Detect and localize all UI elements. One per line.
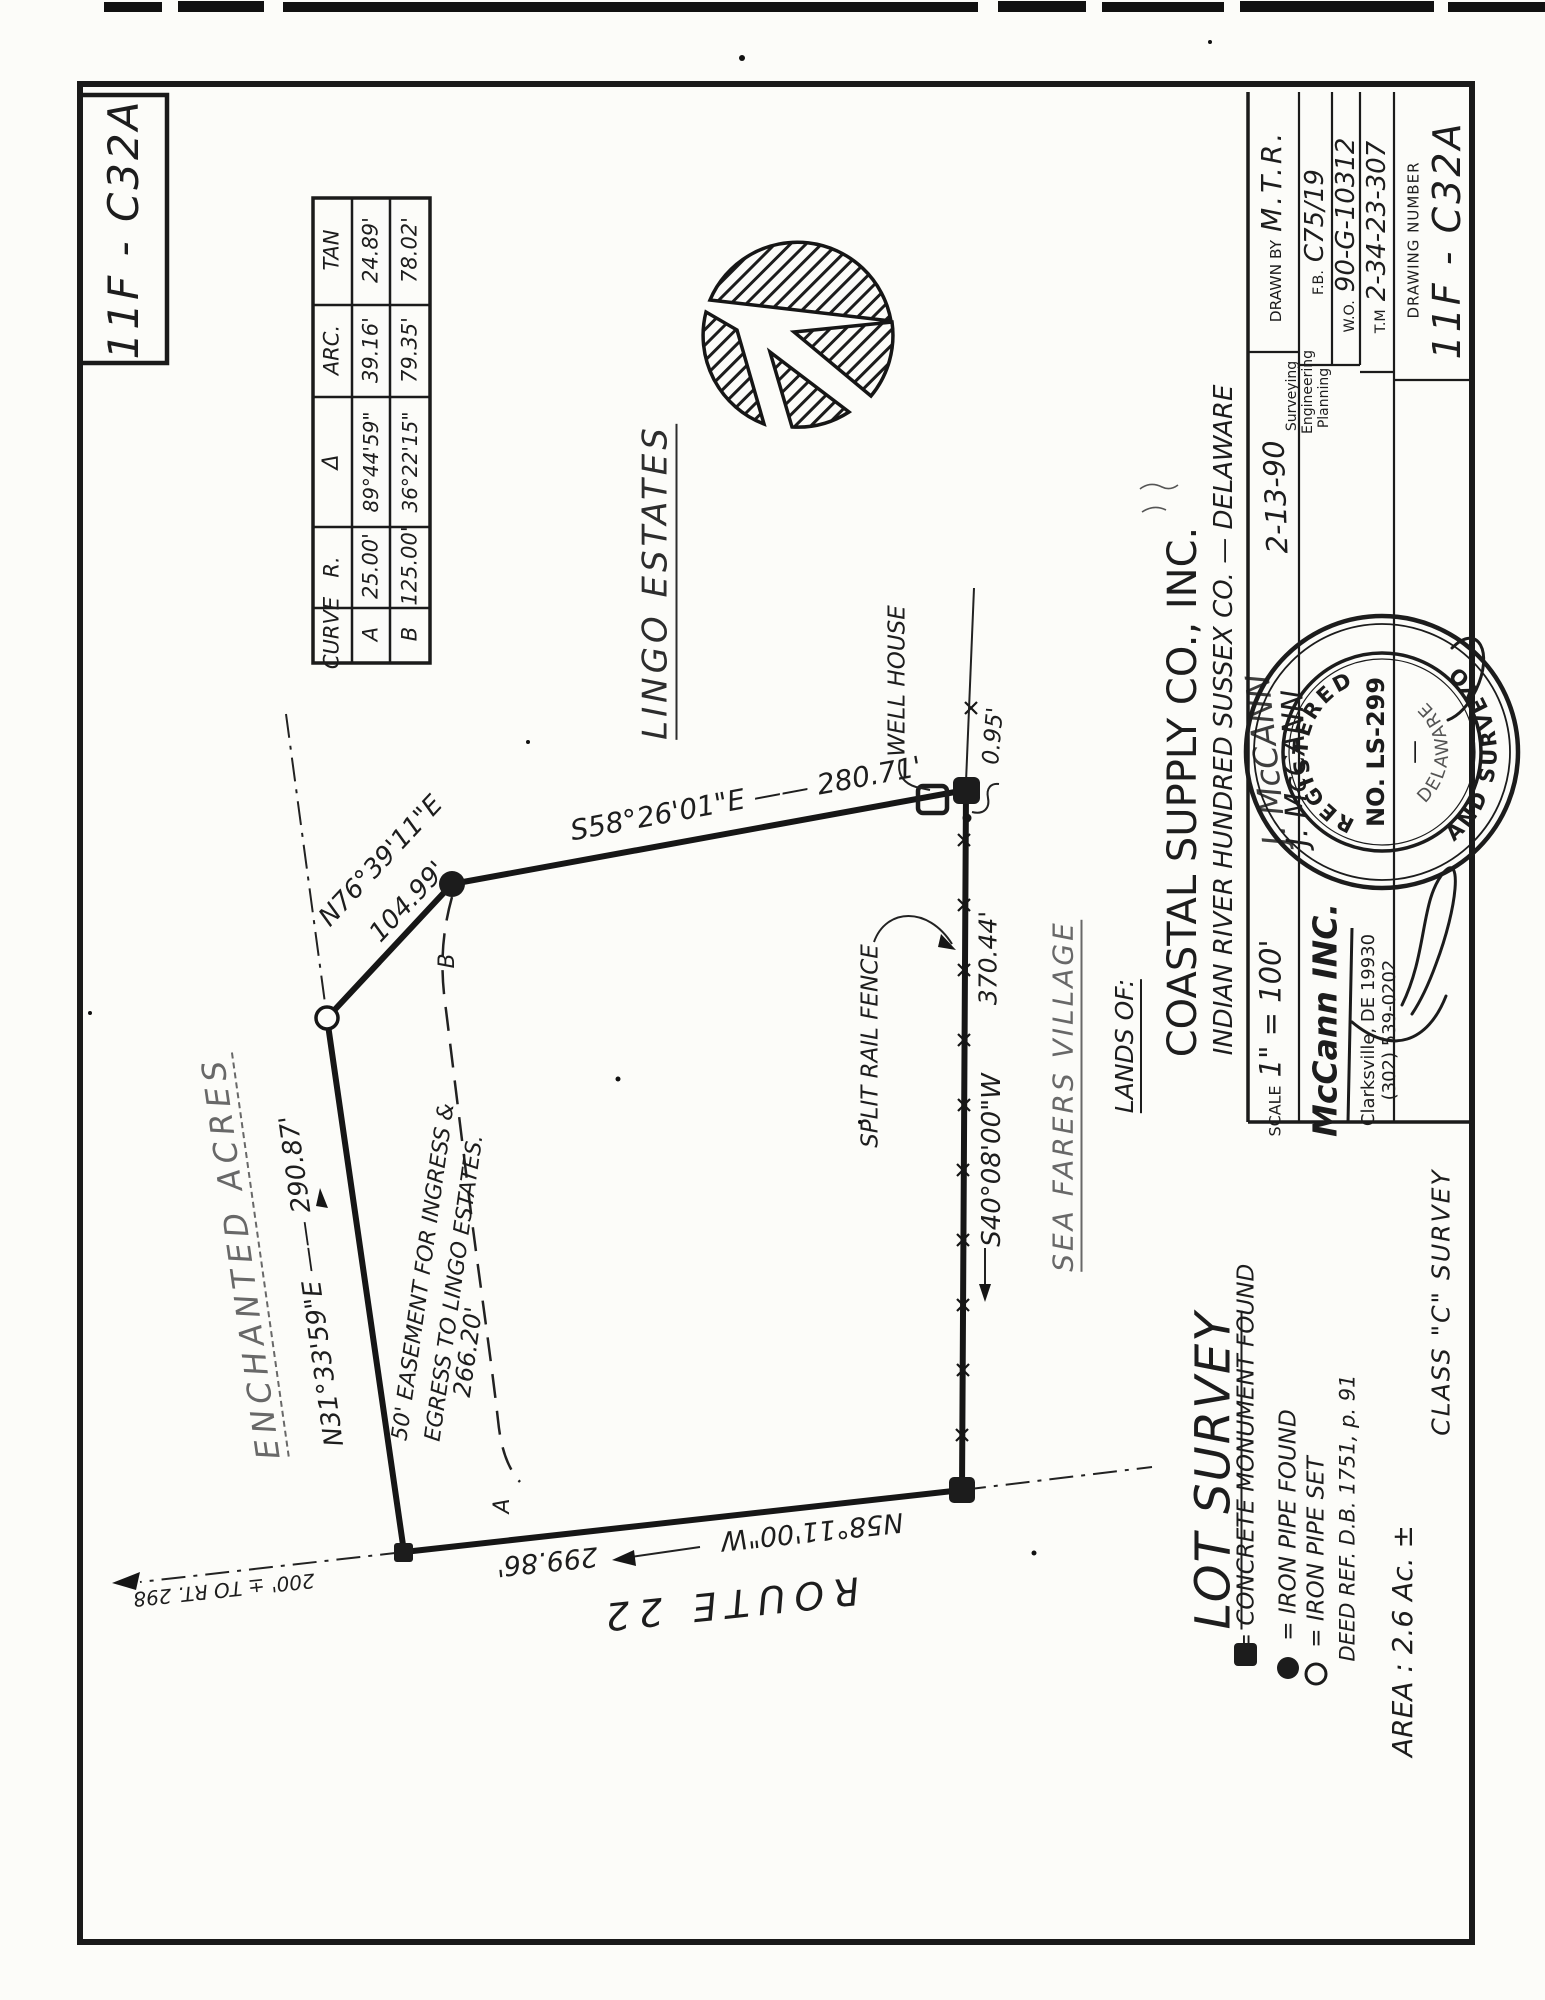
fence-extension <box>966 588 974 782</box>
iron-pipe-set-symbol <box>316 1007 338 1029</box>
wo-value: 90-G-10312 <box>1331 138 1361 293</box>
offset-pipe-dot <box>963 814 972 823</box>
survey-sheet: REGISTERED DELAWARE LAND SURVEYOR NO. LS… <box>0 0 1545 2000</box>
curve-b-tan: 78.02' <box>400 217 421 283</box>
adjoiner-seafarers-village: SEA FARERS VILLAGE <box>1050 920 1083 1272</box>
scale-row: SCALE1" = 100' <box>1257 940 1286 1137</box>
legend-pipe-set-label: = IRON PIPE SET <box>1306 1456 1329 1648</box>
bearing-w-arrowhead <box>316 1188 328 1208</box>
curve-a-id: A <box>361 627 382 641</box>
tm-value: 2-34-23-307 <box>1362 141 1392 301</box>
curve-table-header-curve: CURVE <box>322 597 343 669</box>
curve-b-id: B <box>400 627 421 641</box>
bearing-s-arrowhead <box>612 1550 636 1566</box>
seal-number: NO. LS-299 <box>1362 677 1390 827</box>
company-name: COASTAL SUPPLY CO., INC. <box>1163 527 1203 1058</box>
legend-monument-label: = CONCRETE MONUMENT FOUND <box>1236 1264 1259 1652</box>
bearing-s-arrow <box>624 1547 700 1558</box>
legend-pipe-set-icon <box>1306 1664 1326 1684</box>
corner-drawing-number: 11F - C32A <box>103 99 145 360</box>
monument-se-symbol <box>949 1477 975 1503</box>
firm-svc-3: Planning <box>1317 368 1331 428</box>
curve-table-header-arc: ARC. <box>322 325 343 375</box>
monument-sw-symbol <box>394 1543 413 1562</box>
curve-a-delta: 89°44'59" <box>361 411 381 512</box>
fb-value: C75/19 <box>1300 169 1330 262</box>
curve-table-header-delta: Δ <box>321 454 343 469</box>
curve-b-tag: B <box>437 953 459 968</box>
firm-name: McCann INC. <box>1309 903 1342 1137</box>
drawing-number-label: DRAWING NUMBER <box>1407 161 1422 318</box>
wo-label: W.O. <box>1342 300 1358 332</box>
firm-addr-1: Clarksville, DE 19930 <box>1360 934 1378 1126</box>
firm-addr-2: (302) 539-0202 <box>1381 960 1399 1101</box>
curve-b-r: 125.00' <box>400 526 421 605</box>
drawing-number-value: 11F - C32A <box>1428 121 1466 360</box>
firm-svc-2: Engineering <box>1301 350 1315 434</box>
curve-a-tan: 24.89' <box>361 217 382 283</box>
distance-e-label: 370.44' <box>976 911 1001 1005</box>
company-location: INDIAN RIVER HUNDRED SUSSEX CO. — DELAWA… <box>1211 385 1237 1056</box>
scale-value: 1" = 100' <box>1254 940 1288 1078</box>
drawn-by-row: DRAWN BYM.T.R. <box>1258 130 1286 322</box>
monument-ne-symbol <box>953 777 980 804</box>
well-house-label: WELL HOUSE <box>887 605 910 757</box>
fence-offset-label: 0.95' <box>980 706 1008 765</box>
curve-b-arc: 79.35' <box>400 317 421 383</box>
seal-dash: — <box>1400 740 1428 764</box>
adjoiner-lingo-estates: LINGO ESTATES <box>639 424 678 740</box>
lands-of-label: LANDS OF: <box>1112 979 1142 1113</box>
scale-label: SCALE <box>1266 1085 1285 1136</box>
survey-date: 2-13-90 <box>1260 440 1293 554</box>
survey-class-label: CLASS "C" SURVEY <box>1429 1168 1454 1435</box>
area-label: AREA : 2.6 Ac. ± <box>1389 1525 1417 1757</box>
legend-pipe-found-label: = IRON PIPE FOUND <box>1278 1409 1301 1640</box>
fb-row: F.B.C75/19 <box>1302 169 1328 295</box>
legend-pipe-found-icon <box>1277 1657 1299 1679</box>
curve-b-delta: 36°22'15" <box>400 411 420 512</box>
firm-svc-1: Surveying <box>1285 361 1299 431</box>
curve-table-header-tan: TAN <box>322 230 343 271</box>
bearing-e-arrowhead <box>979 1284 991 1302</box>
north-arrow-icon <box>703 242 893 427</box>
curve-a-arc: 39.16' <box>361 317 382 383</box>
fb-label: F.B. <box>1311 270 1327 295</box>
split-rail-fence-label: SPLIT RAIL FENCE <box>860 944 883 1148</box>
curve-a-r: 25.00' <box>361 533 382 599</box>
curve-a-tag: A <box>492 1498 514 1513</box>
drawn-by-label: DRAWN BY <box>1267 240 1285 322</box>
tm-label: T.M <box>1373 309 1389 333</box>
bearing-e-label: S40°08'00"W <box>979 1073 1005 1247</box>
wo-row: W.O.90-G-10312 <box>1333 138 1359 333</box>
curve-table-header-r: R. <box>322 556 343 577</box>
tm-row: T.M2-34-23-307 <box>1364 141 1390 333</box>
drawn-by-value: M.T.R. <box>1255 130 1288 232</box>
deed-ref-label: DEED REF. D.B. 1751, p. 91 <box>1338 1375 1359 1662</box>
squiggle-artifact <box>1140 484 1178 512</box>
